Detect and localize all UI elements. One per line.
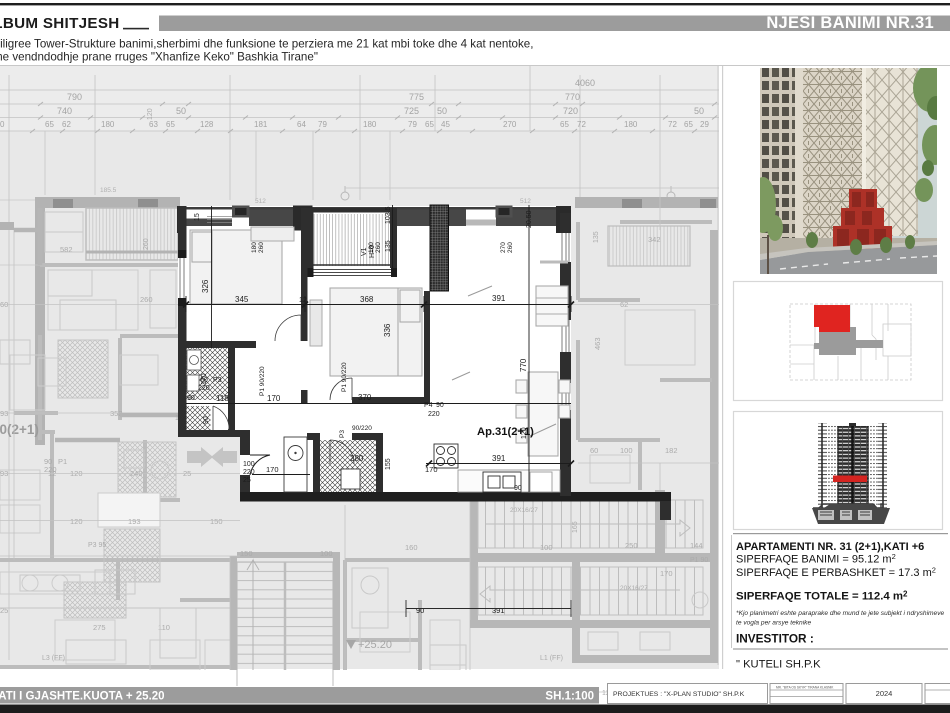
svg-text:Filigree Tower-Strukture banim: Filigree Tower-Strukture banimi,sherbimi… <box>0 38 533 51</box>
svg-text:L1 (FF): L1 (FF) <box>540 655 563 662</box>
svg-text:V1: V1 <box>361 247 368 256</box>
svg-text:118: 118 <box>216 394 229 403</box>
svg-text:135: 135 <box>385 240 392 252</box>
svg-text:260: 260 <box>375 242 382 253</box>
svg-text:25: 25 <box>0 606 8 615</box>
svg-text:SIPERFAQE E PERBASHKET = 17.3: SIPERFAQE E PERBASHKET = 17.3 m2 <box>736 566 936 580</box>
svg-text:260: 260 <box>507 242 514 253</box>
svg-text:103.5: 103.5 <box>385 206 392 224</box>
svg-text:270: 270 <box>503 120 517 129</box>
svg-text:770: 770 <box>565 92 580 102</box>
svg-text:270: 270 <box>500 242 507 253</box>
svg-text:4060: 4060 <box>575 78 595 88</box>
svg-text:128: 128 <box>200 120 214 129</box>
svg-text:P3: P3 <box>339 430 346 438</box>
svg-text:90: 90 <box>514 485 522 492</box>
svg-text:me vendndodhje prane rruges "X: me vendndodhje prane rruges "Xhanfize Ke… <box>0 51 318 64</box>
svg-text:65: 65 <box>166 120 175 129</box>
svg-text:342: 342 <box>648 235 661 244</box>
svg-text:65: 65 <box>684 120 693 129</box>
svg-text:100: 100 <box>243 461 255 468</box>
svg-text:ALBUM SHITJESH: ALBUM SHITJESH <box>0 15 120 32</box>
svg-text:P3: P3 <box>213 377 222 384</box>
svg-text:260: 260 <box>140 295 153 304</box>
svg-text:182: 182 <box>665 446 678 455</box>
svg-text:170: 170 <box>266 465 279 474</box>
svg-text:100: 100 <box>320 549 333 558</box>
svg-text:65: 65 <box>425 120 434 129</box>
svg-text:65: 65 <box>560 120 569 129</box>
svg-text:135: 135 <box>593 231 600 243</box>
svg-text:90: 90 <box>436 402 444 409</box>
svg-text:P1 90: P1 90 <box>690 557 708 564</box>
svg-text:150: 150 <box>240 549 253 558</box>
svg-text:93: 93 <box>0 409 8 418</box>
svg-text:60: 60 <box>590 446 598 455</box>
svg-text:155: 155 <box>385 458 392 470</box>
svg-text:Ap.31(2+1): Ap.31(2+1) <box>477 426 534 438</box>
svg-text:*Kjo planimetri eshte paraprak: *Kjo planimetri eshte paraprake dhe mund… <box>736 610 945 617</box>
svg-text:144: 144 <box>690 541 703 550</box>
svg-text:90: 90 <box>416 606 424 615</box>
svg-text:185.5: 185.5 <box>100 187 117 194</box>
svg-text:720: 720 <box>563 106 578 116</box>
svg-text:15: 15 <box>194 213 201 221</box>
svg-text:20X16/27: 20X16/27 <box>620 585 648 592</box>
svg-text:180: 180 <box>101 120 115 129</box>
svg-text:L3 (FF): L3 (FF) <box>42 655 65 662</box>
svg-text:50: 50 <box>694 106 704 116</box>
svg-text:170: 170 <box>425 465 438 474</box>
svg-text:370: 370 <box>358 393 372 402</box>
svg-text:50: 50 <box>176 106 186 116</box>
svg-text:345: 345 <box>235 295 249 304</box>
svg-text:30(2+1): 30(2+1) <box>0 422 39 437</box>
svg-text:150: 150 <box>210 517 223 526</box>
svg-text:582: 582 <box>60 245 73 254</box>
svg-text:725: 725 <box>404 106 419 116</box>
svg-text:512: 512 <box>520 198 531 205</box>
svg-text:90/220: 90/220 <box>352 425 372 432</box>
svg-text:2024: 2024 <box>876 689 893 698</box>
svg-text:P1: P1 <box>58 457 67 466</box>
svg-text:193: 193 <box>128 517 141 526</box>
svg-text:260: 260 <box>258 242 265 253</box>
svg-text:250: 250 <box>625 541 638 550</box>
svg-text:512: 512 <box>255 198 266 205</box>
svg-text:PROJEKTUES : "X-PLAN STUDIO": PROJEKTUES : "X-PLAN STUDIO" SH.P.K <box>613 691 745 698</box>
svg-text:P4: P4 <box>424 402 433 409</box>
svg-text:72: 72 <box>577 120 586 129</box>
svg-text:0: 0 <box>0 120 5 129</box>
svg-text:60: 60 <box>200 377 208 384</box>
svg-text:+25.20: +25.20 <box>358 639 392 651</box>
svg-text:220: 220 <box>44 465 57 474</box>
svg-text:120: 120 <box>147 108 154 120</box>
svg-text:160: 160 <box>405 543 418 552</box>
svg-text:100: 100 <box>540 543 553 552</box>
svg-text:770: 770 <box>519 358 528 372</box>
svg-text:220: 220 <box>428 411 440 418</box>
svg-text:180: 180 <box>251 242 258 253</box>
svg-text:275: 275 <box>93 623 106 632</box>
svg-text:165: 165 <box>572 521 579 533</box>
svg-text:SIPERFAQE BANIMI = 95.12 m2: SIPERFAQE BANIMI = 95.12 m2 <box>736 552 896 566</box>
svg-text:280: 280 <box>350 454 364 463</box>
svg-text:63: 63 <box>149 120 158 129</box>
svg-text:KATI I GJASHTE.KUOTA + 25.20: KATI I GJASHTE.KUOTA + 25.20 <box>0 691 165 703</box>
svg-text:79: 79 <box>408 120 417 129</box>
svg-text:180: 180 <box>363 120 377 129</box>
svg-text:12: 12 <box>299 297 307 304</box>
svg-text:25: 25 <box>243 477 251 484</box>
svg-text:170: 170 <box>660 569 673 578</box>
svg-text:326: 326 <box>201 279 210 293</box>
svg-text:775: 775 <box>409 92 424 102</box>
svg-text:APARTAMENTI NR. 31 (2+1),KATI: APARTAMENTI NR. 31 (2+1),KATI +6 <box>736 541 924 553</box>
svg-text:790: 790 <box>67 92 82 102</box>
svg-text:62: 62 <box>62 120 71 129</box>
svg-text:20.50: 20.50 <box>526 210 533 228</box>
svg-text:79: 79 <box>318 120 327 129</box>
svg-text:391: 391 <box>492 606 505 615</box>
svg-text:50: 50 <box>437 106 447 116</box>
svg-text:120: 120 <box>70 517 83 526</box>
svg-text:740: 740 <box>57 106 72 116</box>
svg-text:SH.1:100: SH.1:100 <box>545 691 594 703</box>
svg-text:181: 181 <box>254 120 268 129</box>
svg-text:65: 65 <box>45 120 54 129</box>
svg-text:P3 95: P3 95 <box>88 542 106 549</box>
svg-text:MR. "BITA OS SKYR" TIRANA KLAS: MR. "BITA OS SKYR" TIRANA KLASNIK <box>776 686 834 690</box>
svg-text:100: 100 <box>620 446 633 455</box>
svg-text:368: 368 <box>360 295 374 304</box>
svg-text:170: 170 <box>267 394 281 403</box>
svg-text:P1 90/220: P1 90/220 <box>341 362 348 392</box>
svg-text:391: 391 <box>492 454 506 463</box>
svg-text:72: 72 <box>668 120 677 129</box>
svg-text:INVESTITOR :: INVESTITOR : <box>736 632 814 646</box>
svg-text:29: 29 <box>700 120 709 129</box>
svg-text:260: 260 <box>143 238 150 250</box>
svg-text:" KUTELI SH.P.K: " KUTELI SH.P.K <box>736 659 821 671</box>
svg-text:180: 180 <box>624 120 638 129</box>
svg-text:90: 90 <box>187 395 195 402</box>
svg-text:220: 220 <box>243 469 255 476</box>
svg-text:SIPERFAQE TOTALE = 112.4 m2: SIPERFAQE TOTALE = 112.4 m2 <box>736 590 908 603</box>
svg-text:220: 220 <box>198 385 210 392</box>
svg-text:391: 391 <box>492 294 506 303</box>
svg-text:H=0: H=0 <box>369 245 376 258</box>
svg-text:NJESI BANIMI NR.31: NJESI BANIMI NR.31 <box>766 14 934 32</box>
svg-text:P1 90/220: P1 90/220 <box>259 366 266 396</box>
svg-text:336: 336 <box>383 323 392 337</box>
svg-text:20X16/27: 20X16/27 <box>510 507 538 514</box>
svg-text:463: 463 <box>593 337 602 350</box>
svg-text:64: 64 <box>297 120 306 129</box>
svg-text:90: 90 <box>203 416 210 424</box>
svg-text:45: 45 <box>441 120 450 129</box>
svg-text:te vogla per arsye teknike: te vogla per arsye teknike <box>736 620 811 627</box>
